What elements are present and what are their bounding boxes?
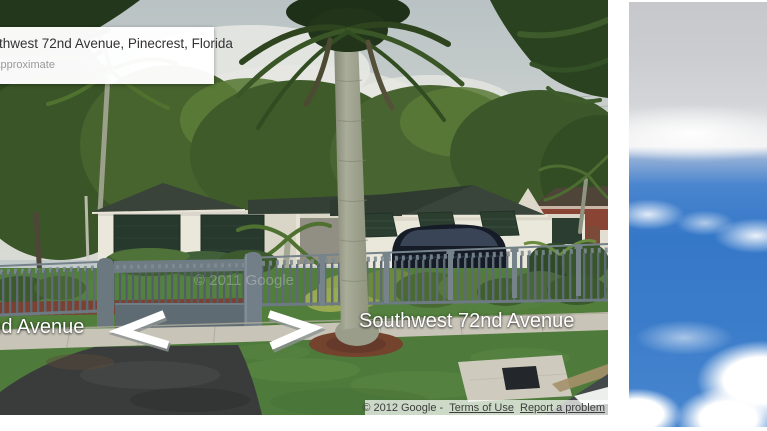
driveway-gate <box>97 252 262 329</box>
utility-cover <box>502 366 540 390</box>
right-window <box>552 218 582 244</box>
address-title: Southwest 72nd Avenue, Pinecrest, Florid… <box>0 36 202 51</box>
street-label-left: Southwest 72nd Avenue <box>0 316 84 339</box>
attribution-bar: © 2012 Google - Terms of Use Report a pr… <box>365 400 608 415</box>
copyright-text: © 2012 Google - <box>362 402 443 414</box>
street-view-viewport[interactable]: © 2011 Google Southwest 72nd Avenue Sout… <box>0 0 608 415</box>
report-problem-link[interactable]: Report a problem <box>520 402 605 414</box>
street-view-app: © 2011 Google Southwest 72nd Avenue Sout… <box>0 0 767 431</box>
terms-of-use-link[interactable]: Terms of Use <box>449 402 514 414</box>
address-subtitle: Address is approximate <box>0 59 202 71</box>
street-label-right: Southwest 72nd Avenue <box>359 310 574 333</box>
address-card: Southwest 72nd Avenue, Pinecrest, Florid… <box>0 27 214 84</box>
utility-pad <box>458 355 572 402</box>
sky-image <box>629 2 767 427</box>
